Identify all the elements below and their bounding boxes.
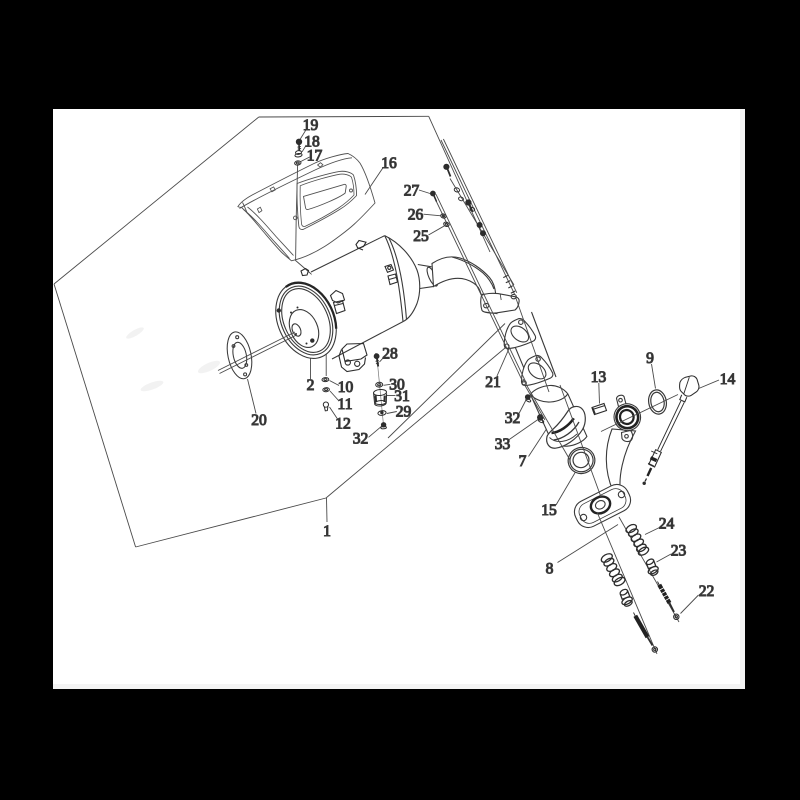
svg-text:27: 27 — [404, 182, 420, 199]
svg-text:20: 20 — [251, 412, 267, 429]
svg-text:11: 11 — [338, 396, 353, 413]
svg-text:1: 1 — [323, 523, 331, 540]
svg-text:22: 22 — [699, 583, 715, 600]
svg-text:10: 10 — [338, 379, 354, 396]
svg-text:15: 15 — [541, 502, 557, 519]
svg-text:16: 16 — [381, 155, 397, 172]
svg-text:26: 26 — [408, 206, 424, 223]
svg-text:7: 7 — [519, 453, 527, 470]
svg-text:12: 12 — [335, 415, 351, 432]
svg-text:2: 2 — [307, 377, 315, 394]
svg-text:24: 24 — [659, 515, 675, 532]
svg-text:32: 32 — [353, 430, 369, 447]
svg-text:8: 8 — [546, 560, 554, 577]
svg-text:28: 28 — [382, 345, 398, 362]
svg-text:25: 25 — [413, 228, 429, 245]
svg-text:17: 17 — [307, 147, 323, 164]
svg-text:33: 33 — [495, 436, 511, 453]
svg-text:29: 29 — [396, 403, 412, 420]
svg-text:32: 32 — [505, 410, 521, 427]
svg-text:23: 23 — [671, 542, 687, 559]
svg-text:31: 31 — [394, 388, 410, 405]
svg-text:21: 21 — [485, 374, 501, 391]
svg-text:14: 14 — [720, 371, 736, 388]
svg-text:19: 19 — [303, 117, 319, 134]
svg-text:13: 13 — [591, 369, 607, 386]
svg-text:9: 9 — [646, 350, 654, 367]
